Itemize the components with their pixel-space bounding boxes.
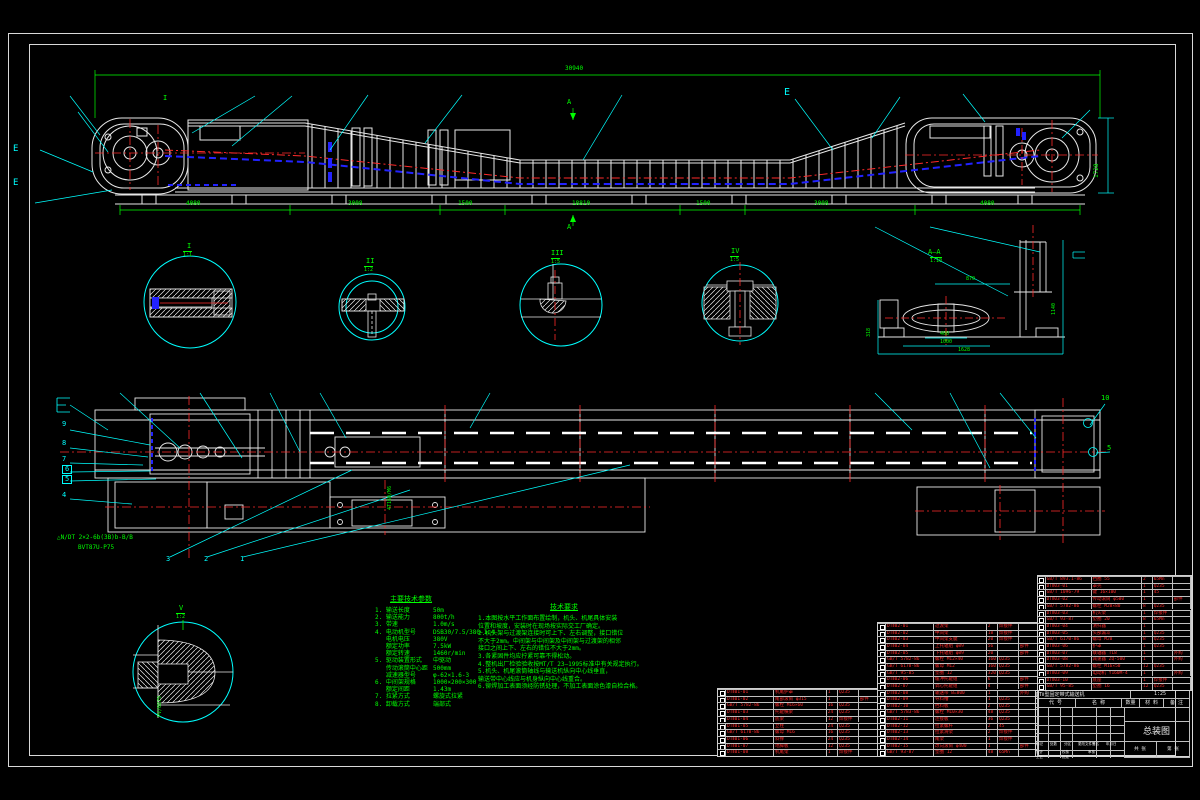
- bom-table-a: DTⅡ01-01机尾护罩1Q235DTⅡ01-02尾部滚筒 φ3151部件GB/…: [717, 688, 879, 757]
- bom-header-mat: 材 料: [1140, 699, 1164, 708]
- sign-label: 校核: [1062, 751, 1069, 755]
- rev-header-label: 年月日: [1106, 743, 1117, 747]
- bom-row: DTⅡ01-08机尾架1焊接件: [718, 749, 878, 756]
- bom-cell: 机尾架: [774, 750, 827, 756]
- balloon-7: 7: [62, 456, 66, 463]
- leader-line: [70, 405, 108, 430]
- bom-row: GB/T 95-85垫圈 12320Q235: [878, 670, 1038, 677]
- title-block-grid-line: [1096, 708, 1097, 758]
- req-line: 5.机头、机尾滚筒轴线与输送机纵向中心线垂直，: [478, 669, 611, 675]
- rev-header-label: 分区: [1064, 743, 1071, 747]
- bom-row: DTⅡ02-13拉紧滑架2焊接件: [878, 729, 1038, 736]
- drawing-scale: 1:25: [1131, 691, 1190, 699]
- sheet-number: 第 张: [1157, 742, 1190, 758]
- bom-item-no: [718, 750, 726, 756]
- detail-iv-label: IV: [731, 248, 739, 255]
- support-foot: [1018, 195, 1032, 204]
- bom-row: DTⅡ02-12拉紧螺杆245: [878, 723, 1038, 730]
- balloon-4: 4: [62, 492, 66, 499]
- top-view-height-dim: [1098, 118, 1114, 193]
- leader-line: [232, 96, 292, 146]
- dim-label: 1500: [696, 201, 710, 207]
- detail-circles-linework: [144, 256, 778, 348]
- section-aa-dim-top: 870: [966, 277, 975, 282]
- support-foot: [732, 195, 746, 204]
- leader-line: [207, 490, 410, 557]
- bom-table-b: DTⅡ02-01过渡架2焊接件DTⅡ02-02中间架18焊接件DTⅡ02-03中…: [877, 622, 1039, 757]
- sign-label: 审核: [1088, 751, 1095, 755]
- bom-row: DTⅡ03-03机头架1焊接件: [1038, 610, 1191, 617]
- section-aa-dim-b1: 400: [940, 332, 949, 337]
- req-line: 6.铆焊加工表面须经防锈处理，不加工表面涂色漆自检合格。: [478, 684, 641, 690]
- section-marker-a-bottom: A: [567, 224, 571, 231]
- drawing-code: DTⅡ型固定带式输送机: [1036, 691, 1131, 699]
- req-line: 3.各紧固件均应拧紧可靠不得松动。: [478, 654, 575, 660]
- bom-row: DTⅡ01-01机尾护罩1Q235: [718, 689, 878, 696]
- plan-motor-label: 4T160/M6: [388, 486, 393, 510]
- sign-label: 设计: [1036, 751, 1043, 755]
- bom-row: DTⅡ02-03中间架支腿20焊接件: [878, 636, 1038, 643]
- bom-cell: GB/T 93-87: [886, 750, 934, 756]
- section-aa-dim-b3: 1628: [958, 348, 970, 353]
- bom-row: DTⅡ02-06缓冲托辊组6部件: [878, 676, 1038, 683]
- bom-cell: 垫圈 12: [934, 750, 987, 756]
- bom-row: DTⅡ01-02尾部滚筒 φ3151部件: [718, 696, 878, 703]
- bom-row: DTⅡ03-06护罩1Q235: [1038, 643, 1191, 650]
- leader-line: [583, 95, 622, 160]
- section-marker-e: E: [784, 88, 790, 98]
- param-name: 3. 带速: [375, 622, 398, 628]
- req-line: 1.本图按水平工作面布置绘制，机头、机尾具体安装: [478, 616, 617, 622]
- bom-row: DTⅡ01-05立柱24Q235: [718, 723, 878, 730]
- leader-line: [70, 430, 150, 445]
- support-foot: [932, 195, 946, 204]
- detail-iii-label: III: [551, 250, 564, 257]
- balloon-box-icon: [880, 751, 885, 756]
- leader-line: [950, 393, 990, 468]
- param-name: 减速器型号: [375, 673, 416, 679]
- bom-row: DTⅡ02-11连接板36Q235: [878, 716, 1038, 723]
- bom-row: DTⅡ03-02传动滚筒 φ5001部件: [1038, 596, 1191, 603]
- title-block-rev-zone: 标记处数分区更改文件号签名年月日设计校核审核工艺批准: [1036, 708, 1125, 758]
- leader-line: [1090, 404, 1105, 425]
- param-value: 500mm: [433, 666, 451, 672]
- param-name: 8. 卸载方式: [375, 702, 410, 708]
- leader-line: [78, 112, 108, 152]
- bom-row: DTⅡ03-01罩壳1Q235: [1038, 583, 1191, 590]
- bom-row: GB/T 1096-79键 16×100145: [1038, 589, 1191, 596]
- dim-label: 4080: [980, 201, 994, 207]
- leader-line: [270, 393, 300, 452]
- balloon-10: 10: [1101, 395, 1109, 402]
- cad-drawing-canvas: 30940 4080 3008 1500 18810 1500 3008 408…: [0, 0, 1200, 800]
- bom-row: DTⅡ02-07调心托辊组4部件: [878, 683, 1038, 690]
- section-aa-dim-b2: 1000: [940, 340, 952, 345]
- req-line: 输送带中心线应与机身纵向中心线重合。: [478, 677, 586, 683]
- plan-note-line2: BVT87U-P75: [78, 545, 114, 551]
- param-value: 1.0m/s: [433, 622, 455, 628]
- section-aa-red: [885, 225, 1033, 345]
- belt-red-centerline: [165, 150, 1040, 178]
- dim-label: 3008: [814, 201, 828, 207]
- bom-row: DTⅡ02-04上托辊组 φ8956部件: [878, 643, 1038, 650]
- rev-header-label: 签名: [1092, 743, 1099, 747]
- leader-line: [425, 95, 462, 143]
- bom-header-note: 备 注: [1164, 699, 1190, 708]
- title-block: DTⅡ型固定带式输送机 1:25 代 号 名 称 数量 材 料 备 注 标记处数…: [1035, 690, 1190, 757]
- bom-cell: 65Mn: [998, 750, 1019, 756]
- leader-line: [330, 95, 368, 150]
- top-view-red-centerlines: [95, 119, 1098, 192]
- title-block-grid-line: [1110, 708, 1111, 758]
- support-foot: [432, 195, 446, 204]
- drawing-title: 总装图: [1124, 722, 1190, 742]
- bom-row: GB/T 6170-86螺母 M208Q235: [1038, 636, 1191, 643]
- bom-row: DTⅡ03-09电动机 Y160M-41外购: [1038, 670, 1191, 677]
- sheet-count: 共 张: [1124, 742, 1157, 758]
- bom-row: GB/T 5782-86螺栓 M16×5012Q235: [1038, 663, 1191, 670]
- bom-row: GB/T 5783-86螺栓 M10×3048Q235: [878, 709, 1038, 716]
- section-marker-i: I: [163, 95, 167, 102]
- param-name: 4. 电动机型号: [375, 630, 416, 636]
- bom-row: DTⅡ02-14尾架1焊接件: [878, 736, 1038, 743]
- bom-row: DTⅡ02-08输送带 B=8001外购: [878, 690, 1038, 697]
- detail-ii-scale: 1:2: [364, 266, 373, 273]
- support-foot: [232, 195, 246, 204]
- balloon-5-right: 5: [1107, 445, 1111, 452]
- section-marker-a-top: A: [567, 99, 571, 106]
- dim-label: 4080: [186, 201, 200, 207]
- balloon-1: 1: [240, 556, 244, 563]
- detail-iii-scale: 1:5: [551, 258, 560, 265]
- leader-line: [70, 96, 100, 135]
- leader-line: [320, 393, 346, 438]
- balloon-2: 2: [204, 556, 208, 563]
- bom-row: GB/T 93-87垫圈 124865Mn: [878, 749, 1038, 756]
- dim-label: 18810: [572, 201, 590, 207]
- req-line: 4.整机出厂检验验收按MT/T 23—1995标准中有关规定执行。: [478, 662, 643, 668]
- balloon-3: 3: [166, 556, 170, 563]
- dim-label: 1500: [458, 201, 472, 207]
- bom-row: DTⅡ01-07地脚板12Q235: [718, 743, 878, 750]
- bom-cell: 48: [987, 750, 998, 756]
- detail-i-label: I: [187, 243, 191, 250]
- leader-line: [243, 465, 630, 557]
- req-line: 不大于2mm。中间架与中间架及中间架与过渡架的相邻: [478, 639, 621, 645]
- leader-line: [35, 190, 112, 203]
- detail-i-content: [150, 289, 232, 317]
- req-line: 接口之间上下、左右的错位不大于2mm。: [478, 646, 585, 652]
- height-dim-label: 1728: [1094, 164, 1100, 178]
- req-line: 2.机头架与过渡架连接时可上下、左右调整，接口错位: [478, 631, 623, 637]
- bom-header-qty: 数量: [1122, 699, 1140, 708]
- bom-row: DTⅡ03-07联轴器 TL81外购: [1038, 650, 1191, 657]
- bom-row: GB/T 93-87垫圈 20865Mn: [1038, 616, 1191, 623]
- leader-line: [470, 393, 490, 428]
- bom-row: GB/T 893.1-86挡圈 55265Mn: [1038, 576, 1191, 583]
- top-view-linework: [92, 118, 1096, 204]
- sign-label: 工艺: [1036, 756, 1043, 760]
- detail-v-label: V: [179, 605, 183, 612]
- detail-i-scale: 1:1: [183, 251, 192, 258]
- req-line: 位置和坡度，安装时在现场按实际交工厂确定。: [478, 624, 604, 630]
- detail-v-content: [133, 620, 233, 718]
- plan-blue-marks: [152, 418, 1035, 474]
- bom-cell: DTⅡ01-08: [726, 750, 774, 756]
- rev-header-label: 标记: [1036, 743, 1043, 747]
- support-foot: [332, 195, 346, 204]
- bom-row: DTⅡ01-04底梁12焊接件: [718, 716, 878, 723]
- bom-row: DTⅡ02-09导料槽1Q235: [878, 696, 1038, 703]
- detail-v-side-text: PV/0879: [158, 696, 163, 717]
- bom-row: DTⅡ02-01过渡架2焊接件: [878, 623, 1038, 630]
- bom-row: DTⅡ03-10底座1焊接件: [1038, 677, 1191, 684]
- bom-row: DTⅡ02-15改向滚筒 φ4001部件: [878, 743, 1038, 750]
- detail-v-scale: 1:2: [176, 613, 185, 620]
- bom-row: DTⅡ03-08减速器 ZQ-5001外购: [1038, 656, 1191, 663]
- bom-row: DTⅡ01-06斜撑24Q235: [718, 736, 878, 743]
- bom-table-c: GB/T 893.1-86挡圈 55265MnDTⅡ03-01罩壳1Q235GB…: [1037, 575, 1192, 691]
- bom-row: GB/T 5782-86螺栓 M12×40160Q235: [878, 656, 1038, 663]
- param-value: 50m: [433, 608, 444, 614]
- detail-iv-scale: 1:5: [730, 256, 739, 263]
- param-value: 7.5kW: [433, 644, 451, 650]
- param-name: 传动滚筒中心距: [375, 666, 428, 672]
- param-name: 7. 拉紧方式: [375, 694, 410, 700]
- bom-row: DTⅡ03-05头部漏斗1Q235: [1038, 630, 1191, 637]
- leader-line: [192, 96, 255, 133]
- tech-req-title: 技术要求: [550, 604, 578, 611]
- bom-row: DTⅡ02-05下托辊组 φ8920部件: [878, 650, 1038, 657]
- bom-row: DTⅡ01-03托辊横梁24Q235: [718, 709, 878, 716]
- bom-row: GB/T 5782-86螺栓 M20×808Q235: [1038, 603, 1191, 610]
- leader-line: [795, 99, 833, 150]
- section-aa-scale: 1:10: [930, 257, 942, 264]
- section-aa-dim-left: 318: [867, 328, 872, 337]
- coupling-blue-marks: [328, 128, 1026, 182]
- title-block-grid-line: [1048, 708, 1049, 758]
- leader-line: [875, 393, 912, 430]
- plan-rails: [310, 433, 1032, 463]
- section-aa-dim-right: 1140: [1052, 303, 1057, 315]
- bom-row: GB/T 6170-86螺母 M1616Q235: [718, 729, 878, 736]
- title-block-grid-line: [1060, 708, 1061, 758]
- title-block-grid-line: [1072, 708, 1073, 758]
- support-foot: [632, 195, 646, 204]
- section-marker-e-left1: E: [13, 145, 18, 154]
- bom-row: GB/T 5782-86螺栓 M16×6016Q235: [718, 702, 878, 709]
- section-aa-linework: [878, 240, 1065, 337]
- bom-row: GB/T 6170-86螺母 M12160Q235: [878, 663, 1038, 670]
- sign-label: 批准: [1062, 756, 1069, 760]
- plan-view-linework: [95, 398, 1100, 535]
- leader-line: [1000, 393, 1036, 438]
- bom-row: DTⅡ02-02中间架18焊接件: [878, 630, 1038, 637]
- balloon-6: 6: [62, 465, 72, 474]
- title-block-stage-row: [1124, 708, 1190, 722]
- leader-line: [70, 499, 132, 504]
- leader-line: [70, 463, 143, 465]
- support-foot: [532, 195, 546, 204]
- leader-line: [70, 448, 148, 457]
- leader-line: [70, 479, 156, 481]
- param-value: 螺旋式拉紧: [433, 694, 463, 700]
- param-value: 800t/h: [433, 615, 455, 621]
- param-value: 1000×200×300: [433, 680, 476, 686]
- support-foot: [142, 195, 156, 204]
- bom-header-code: 代 号: [1036, 699, 1076, 708]
- leader-line: [40, 150, 93, 172]
- bom-header-name: 名 称: [1076, 699, 1122, 708]
- dim-label: 3008: [348, 201, 362, 207]
- param-name: 电机电压: [375, 637, 410, 643]
- tech-params-title: 主要技术参数: [390, 596, 432, 603]
- balloon-8: 8: [62, 440, 66, 447]
- bom-item-no: [878, 750, 886, 756]
- balloon-9: 9: [62, 421, 66, 428]
- bom-row: DTⅡ03-04清扫器1: [1038, 623, 1191, 630]
- bom-row: DTⅡ02-10挡料板2Q235: [878, 703, 1038, 710]
- section-marker-e-left2: E: [13, 179, 18, 188]
- param-value: φ-62×1.6-3: [433, 673, 469, 679]
- bom-row: GB/T 95-85垫圈 1612Q235: [1038, 683, 1191, 690]
- leader-line: [170, 470, 352, 557]
- param-value: 中驱动: [433, 658, 451, 664]
- top-overall-dim: 30940: [565, 66, 583, 72]
- plan-note-line1: △N/DT 2×2-6b(3B)b-B/B: [57, 535, 133, 541]
- balloon-box-icon: [720, 751, 725, 756]
- bom-cell: [859, 750, 878, 756]
- support-foot: [832, 195, 846, 204]
- param-name: 5. 驱动装置形式: [375, 658, 422, 664]
- leader-line: [70, 471, 150, 472]
- param-value: 端部式: [433, 702, 451, 708]
- param-value: 380V: [433, 637, 447, 643]
- rev-header-label: 处数: [1050, 743, 1057, 747]
- bom-cell: 焊接件: [838, 750, 859, 756]
- detail-ii-label: II: [366, 258, 374, 265]
- section-aa-label: A—A: [928, 249, 941, 256]
- section-aa-dims: [875, 227, 1085, 354]
- balloon-5: 5: [62, 475, 72, 484]
- bom-cell: 1: [827, 750, 838, 756]
